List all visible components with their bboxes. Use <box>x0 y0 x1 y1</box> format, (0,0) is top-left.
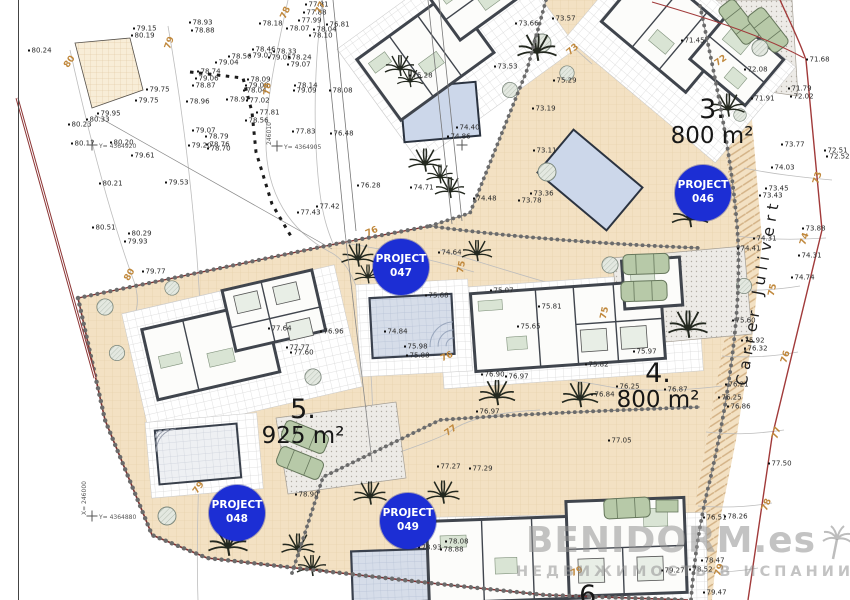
pool-center <box>369 294 454 358</box>
site-plan-canvas: 80.2479.1580.1979.7579.7579.9580.3380.23… <box>0 0 850 600</box>
site-plan-drawing <box>0 0 850 600</box>
parcel-top-left <box>75 38 143 108</box>
pool-plot6 <box>351 549 437 600</box>
pool-plot5 <box>155 424 241 485</box>
